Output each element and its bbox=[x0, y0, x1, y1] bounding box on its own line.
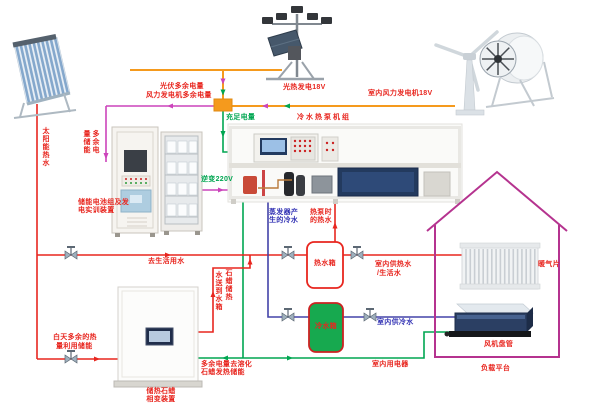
label-indoor-hot-2: /生活水 bbox=[377, 270, 401, 278]
label-indoor-hot-1: 室内供热水 bbox=[375, 261, 412, 269]
system-diagram: 太阳能热水 光伏多余电量 风力发电机多余电量 光热发电18V 室内风力发电机18… bbox=[0, 0, 600, 419]
valve-icon bbox=[65, 247, 77, 259]
solar-collector bbox=[13, 37, 76, 119]
valve-icon bbox=[65, 351, 77, 363]
power-junction-box bbox=[214, 99, 232, 111]
label-battery-device-1: 储能电池组及发 bbox=[78, 199, 129, 207]
label-paraffin-send-left: 水送到水箱 bbox=[214, 271, 223, 311]
label-day-surplus-1: 白天多余的热 bbox=[53, 334, 97, 342]
label-pv-generation: 光热发电18V bbox=[283, 84, 326, 92]
label-indoor-appliances: 室内用电器 bbox=[372, 361, 409, 369]
valve-icon bbox=[282, 309, 294, 321]
wind-tunnel-fan bbox=[480, 33, 554, 107]
label-heatpump-hot-2: 的热水 bbox=[310, 217, 332, 225]
label-solar-hot-water: 太阳能热水 bbox=[41, 127, 50, 167]
label-paraffin-device-1: 储热石蜡 bbox=[144, 388, 178, 396]
label-evaporator-1: 蒸发器产 bbox=[269, 209, 298, 217]
label-heatpump-hot-1: 热泵时 bbox=[310, 209, 332, 217]
label-indoor-cold: 室内供冷水 bbox=[377, 319, 414, 327]
label-wind-generation: 室内风力发电机18V bbox=[368, 90, 432, 98]
fan-coil-unit bbox=[445, 304, 534, 337]
label-surplus-storage: 多余电量储能 bbox=[82, 130, 100, 157]
label-battery-device-2: 电实训装置 bbox=[78, 207, 115, 215]
label-paraffin-send-right: 石蜡储热 bbox=[224, 269, 233, 301]
valve-icon bbox=[282, 247, 294, 259]
battery-cabinet-left bbox=[112, 127, 158, 237]
label-wind-surplus: 风力发电机多余电量 bbox=[146, 92, 212, 100]
label-heat-pump-title: 冷水热泵机组 bbox=[297, 114, 351, 122]
label-melt-paraffin-2: 石蜡发热储能 bbox=[201, 369, 245, 377]
radiator bbox=[460, 243, 540, 289]
heat-pump-unit bbox=[228, 124, 462, 204]
label-fan-coil: 风机盘管 bbox=[484, 341, 513, 349]
label-pv-surplus: 光伏多余电量 bbox=[160, 83, 204, 91]
label-sufficient-power: 充足电量 bbox=[226, 114, 255, 122]
battery-cabinet-right bbox=[161, 132, 202, 235]
label-hot-tank: 热水箱 bbox=[307, 260, 343, 268]
label-day-surplus-2: 量利用储能 bbox=[56, 343, 93, 351]
label-evaporator-2: 生的冷水 bbox=[269, 217, 298, 225]
label-melt-paraffin-1: 多余电量去溶化 bbox=[201, 361, 252, 369]
label-to-domestic: 去生活用水 bbox=[148, 258, 185, 266]
label-cold-tank: 冷水箱 bbox=[309, 323, 343, 331]
label-load-platform: 负载平台 bbox=[481, 365, 510, 373]
label-paraffin-device-2: 相变装置 bbox=[144, 396, 178, 404]
solar-thermal-tracker bbox=[262, 6, 332, 79]
label-inverter: 逆变220V bbox=[201, 176, 233, 184]
paraffin-phase-change-device bbox=[114, 287, 202, 387]
label-radiator: 暖气片 bbox=[538, 261, 560, 269]
valve-icon bbox=[364, 309, 376, 321]
valve-icon bbox=[351, 247, 363, 259]
